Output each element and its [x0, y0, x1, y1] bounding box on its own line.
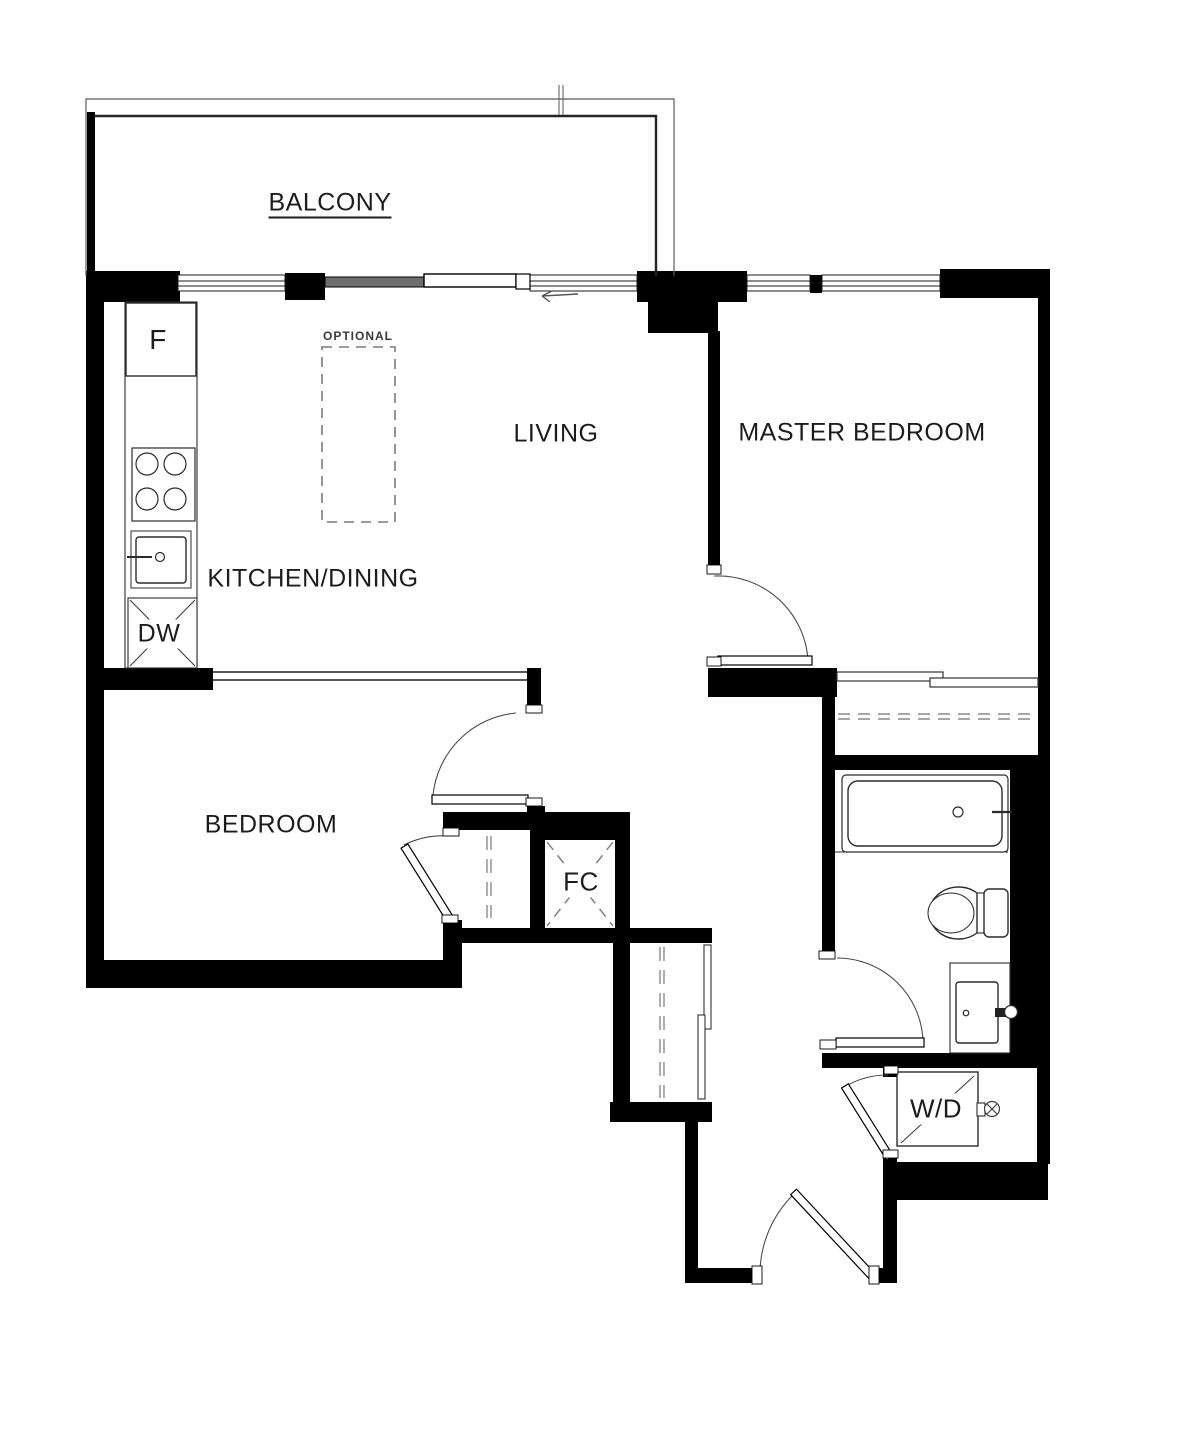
wall-entry-bottom-east: [879, 1268, 897, 1283]
kitchen-counter: [125, 302, 197, 668]
toilet: [928, 887, 1008, 939]
linework-layer: [0, 0, 1179, 1434]
wall-closet-top-band: [443, 812, 542, 830]
balcony-label: BALCONY: [269, 189, 392, 218]
bedroom-closet-door: [401, 828, 459, 923]
bathtub: [835, 775, 1012, 852]
wall-living-master-neck: [648, 295, 718, 333]
kitchen-sink: [127, 531, 191, 588]
wall-right-exterior-upper: [1038, 295, 1050, 757]
wall-laundry-stub-top: [883, 1053, 897, 1077]
dishwasher-label: DW: [134, 620, 185, 649]
living-label: LIVING: [514, 420, 599, 449]
floor-plan: BALCONY LIVING MASTER BEDROOM KITCHEN/DI…: [0, 0, 1179, 1434]
window-master-east: [822, 275, 940, 291]
master-door: [707, 565, 812, 666]
washer-dryer-label: W/D: [906, 1094, 966, 1125]
master-closet: [837, 672, 1038, 719]
window-living: [530, 275, 637, 291]
bedroom-door: [432, 705, 542, 806]
wall-top-segment-1: [285, 273, 325, 300]
wall-kitchen-bedroom-thin: [213, 672, 527, 680]
wall-master-window-stub: [810, 275, 822, 293]
wall-fc-left: [530, 830, 545, 940]
vanity-sink: [950, 963, 1018, 1053]
wall-right-laundry: [1037, 1068, 1050, 1164]
optional-island: [322, 347, 395, 522]
window-master-west: [747, 275, 810, 291]
wall-left-exterior: [86, 271, 104, 988]
slide-direction-arrow: [542, 291, 578, 302]
balcony-left-pier: [87, 112, 95, 276]
wall-hall-band: [443, 928, 712, 943]
entry-door: [752, 1189, 879, 1284]
bedroom-closet-rod: [487, 836, 491, 918]
optional-island-label: OPTIONAL: [323, 329, 393, 343]
window-kitchen: [178, 275, 285, 291]
balcony-outline: [86, 85, 674, 276]
wall-entry-right: [883, 1165, 897, 1283]
laundry-door: [842, 1066, 898, 1160]
wall-master-bottom: [708, 668, 837, 697]
wall-bedroom-door-stub: [527, 668, 541, 707]
cooktop: [132, 448, 195, 521]
wall-bedroom-bottom: [86, 960, 462, 988]
wall-bath-left: [822, 697, 835, 953]
wall-top-right-corner: [940, 269, 1050, 298]
wall-entry-closet-bottom: [610, 1102, 712, 1122]
wall-right-plumbing: [1010, 755, 1050, 1068]
bedroom-label: BEDROOM: [205, 811, 338, 840]
wall-living-master: [708, 331, 720, 567]
laundry-valve-icon: [977, 1102, 1000, 1117]
wall-bath-top: [828, 755, 1010, 770]
fridge-label: F: [149, 324, 167, 356]
balcony-sliding-door: [325, 274, 578, 302]
master-bedroom-label: MASTER BEDROOM: [738, 419, 985, 448]
wall-fc-right: [615, 830, 630, 940]
wall-bottom-right-band: [888, 1162, 1048, 1200]
kitchen-dining-label: KITCHEN/DINING: [207, 565, 418, 594]
foyer-closet-label: FC: [559, 867, 603, 898]
wall-entry-closet-left: [613, 943, 630, 1120]
bathroom-door: [819, 951, 924, 1049]
wall-bedroom-top-black: [86, 668, 213, 690]
wall-entry-bottom-west: [685, 1268, 753, 1283]
entry-closet: [660, 945, 711, 1099]
wall-entry-left: [685, 1120, 698, 1283]
wall-bath-bottom: [822, 1053, 1038, 1068]
